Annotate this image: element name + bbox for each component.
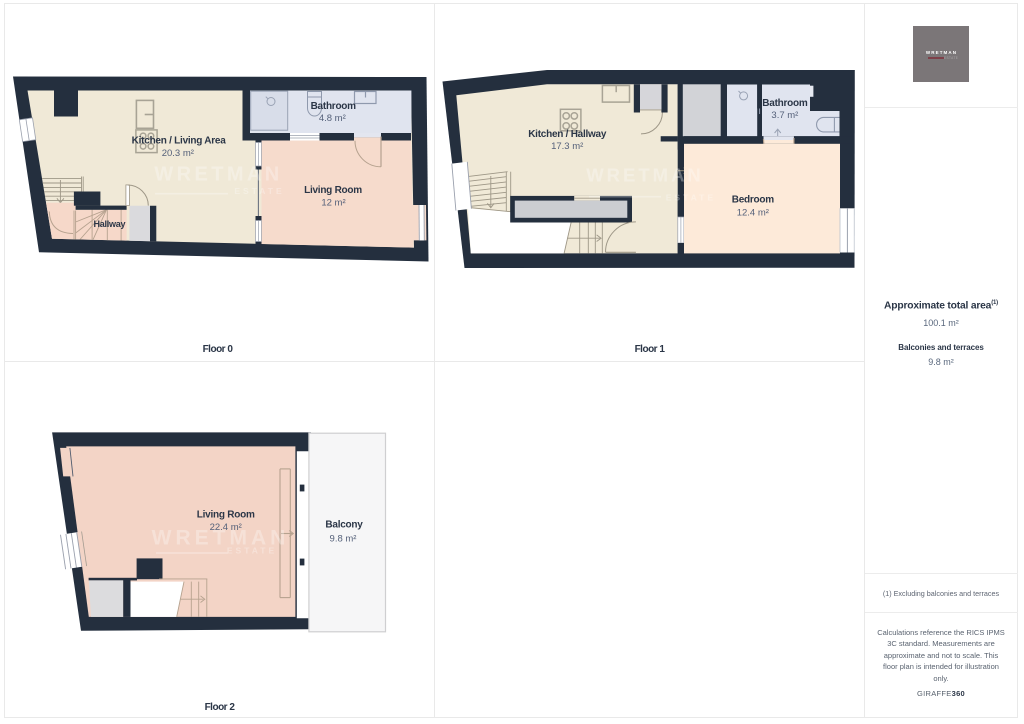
svg-text:Living Room: Living Room — [304, 185, 362, 196]
svg-text:4.8 m²: 4.8 m² — [319, 113, 346, 124]
svg-text:9.8 m²: 9.8 m² — [330, 533, 357, 544]
svg-text:ESTATE: ESTATE — [234, 186, 284, 196]
svg-text:Bedroom: Bedroom — [732, 195, 775, 206]
svg-text:WRETMAN: WRETMAN — [586, 165, 704, 186]
svg-text:Kitchen / Hallway: Kitchen / Hallway — [528, 129, 607, 140]
svg-text:Bathroom: Bathroom — [311, 101, 357, 112]
svg-text:Bathroom: Bathroom — [762, 98, 808, 109]
svg-text:Living Room: Living Room — [197, 510, 255, 521]
svg-text:ESTATE: ESTATE — [227, 546, 277, 556]
svg-text:ESTATE: ESTATE — [666, 193, 716, 203]
svg-text:20.3 m²: 20.3 m² — [162, 148, 194, 159]
svg-text:Balcony: Balcony — [325, 520, 363, 531]
svg-text:Kitchen / Living Area: Kitchen / Living Area — [132, 136, 227, 147]
svg-text:Hallway: Hallway — [94, 219, 126, 229]
svg-text:12 m²: 12 m² — [321, 198, 345, 209]
svg-text:17.3 m²: 17.3 m² — [551, 141, 583, 152]
svg-text:12.4 m²: 12.4 m² — [737, 208, 769, 219]
svg-text:WRETMAN: WRETMAN — [154, 164, 282, 186]
svg-text:3.7 m²: 3.7 m² — [771, 110, 798, 121]
